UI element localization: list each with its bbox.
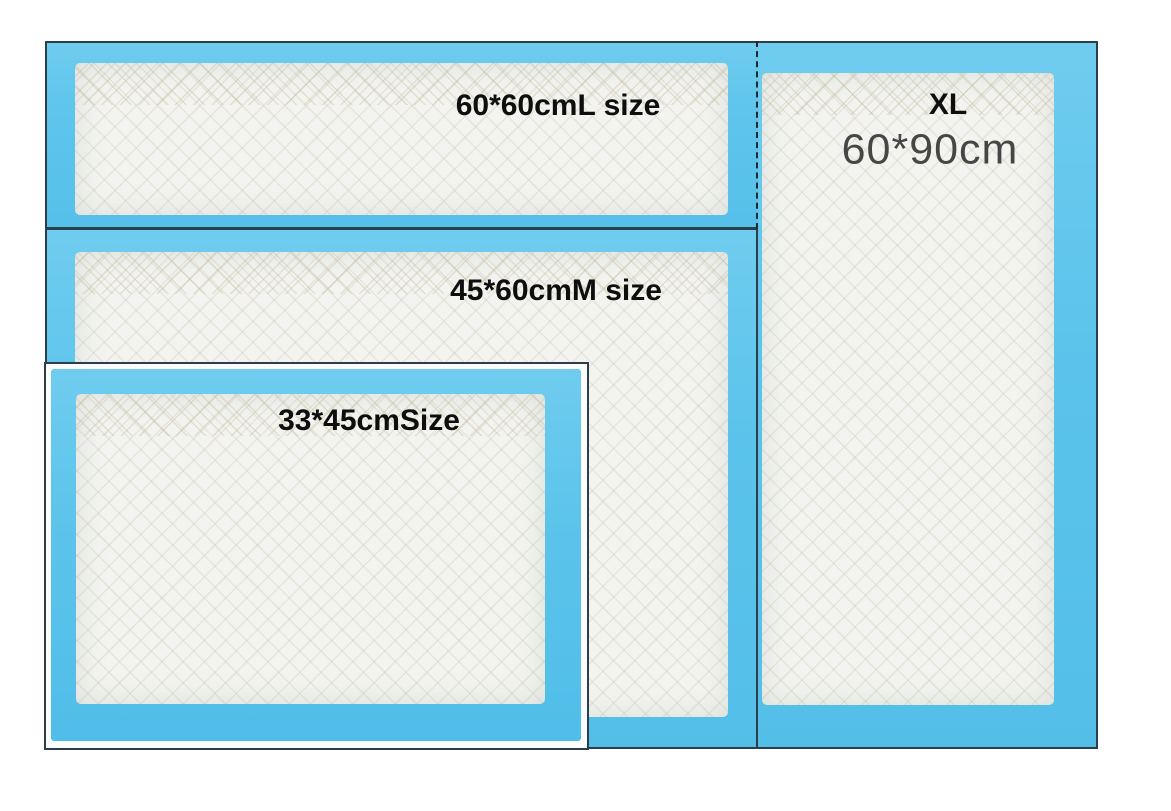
pad-small-size-label: 33*45cmSize xyxy=(278,406,460,436)
pad-large-absorbent-core xyxy=(75,63,728,215)
dashed-divider-line xyxy=(756,41,758,229)
pad-medium-size-label: 45*60cmM size xyxy=(450,276,662,306)
pad-large-60x60 xyxy=(45,41,758,229)
pad-xlarge-dimensions-label: 60*90cm xyxy=(842,129,1019,172)
pad-large-size-label: 60*60cmL size xyxy=(456,91,661,121)
pad-xlarge-size-code-label: XL xyxy=(929,90,967,120)
pad-size-comparison-photo: 60*60cmL size 45*60cmM size 33*45cmSize … xyxy=(0,0,1171,811)
pad-small-absorbent-core xyxy=(76,394,545,704)
